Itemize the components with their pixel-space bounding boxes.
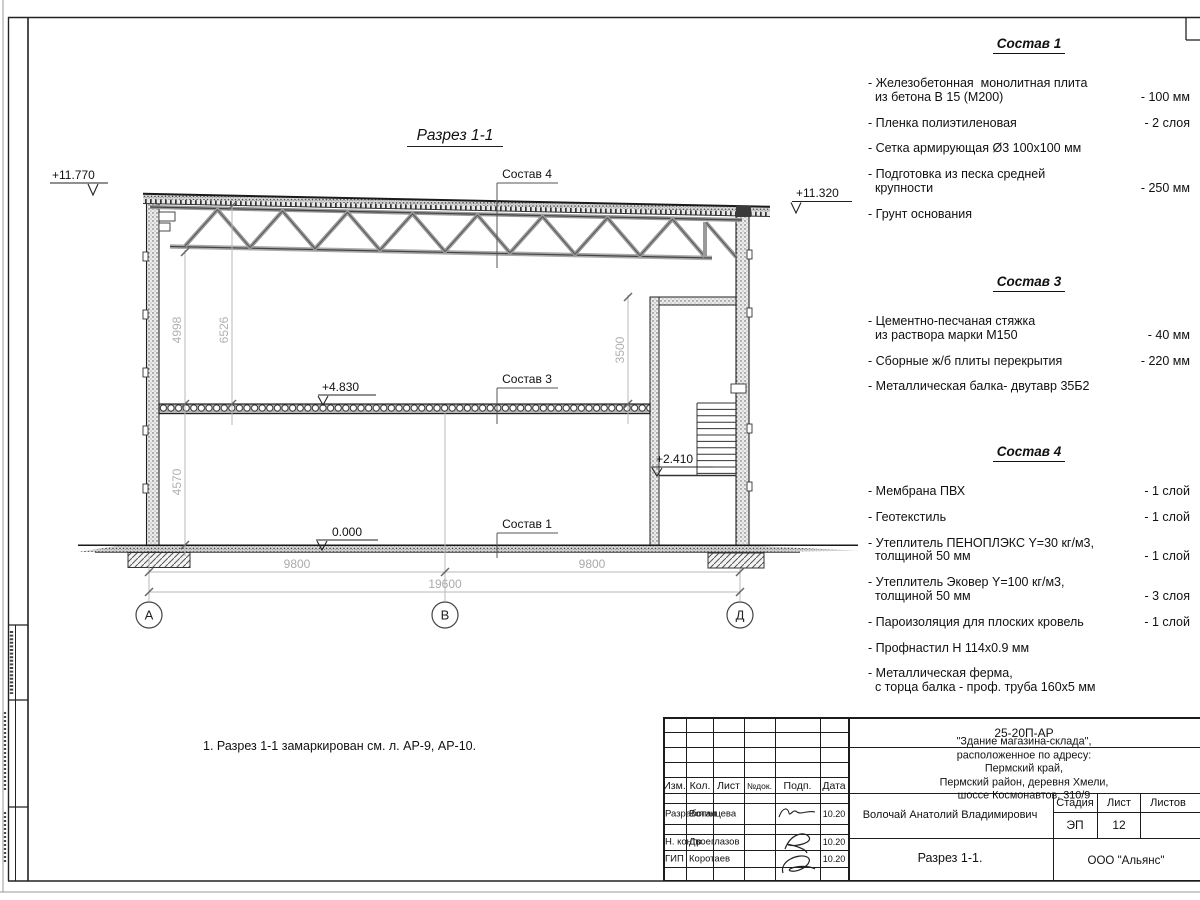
axis-label-b: В [441,608,450,623]
dim-4570: 4570 [170,468,184,495]
spec-item: - Цементно-песчаная стяжка из раствора м… [868,315,1190,343]
title-block: 25-20П-АР "Здание магазина-склада", расп… [663,717,1200,881]
stage-value: ЭП [1066,818,1083,832]
col-ndok: №док. [747,781,772,791]
row-date: 10.20 [823,809,846,819]
leader-sostav3: Состав 3 [502,372,552,386]
spec-item: - Профнастил Н 114х0.9 мм [868,642,1190,656]
spec-item: - Геотекстиль- 1 слой [868,511,1190,525]
dim-span2: 9800 [579,557,606,571]
stairwell-ceiling-slab [659,297,736,305]
spec-item: - Металлическая ферма, с торца балка - п… [868,667,1190,695]
row-name: Коротаев [689,853,730,864]
sheets-label: Листов [1150,797,1186,809]
elev-ground: 0.000 [332,525,362,539]
col-kol: Кол. [690,780,711,792]
spec-item: - Утеплитель Эковер Y=100 кг/м3, толщино… [868,576,1190,604]
ground-floor [78,545,858,568]
axis-bubbles: А В Д [136,602,753,628]
spec-title: Состав 4 [868,444,1190,459]
elev-floor-slab: +4.830 [322,380,359,394]
foundation-right [708,553,764,568]
spec-item: - Подготовка из песка средней крупности-… [868,168,1190,196]
spec-item: - Сетка армирующая Ø3 100х100 мм [868,142,1190,156]
spec-item: - Мембрана ПВХ- 1 слой [868,485,1190,499]
col-list: Лист [717,780,740,792]
spec-item: - Пленка полиэтиленовая- 2 слоя [868,117,1190,131]
row-role: ГИП [665,853,684,864]
axis-label-a: А [145,608,154,623]
spec-list-sostav-4: Состав 4 - Мембрана ПВХ- 1 слой - Геотек… [868,444,1190,707]
elev-roof-right: +11.320 [796,186,839,200]
leader-sostav4: Состав 4 [502,167,552,181]
sheet-title: Разрез 1-1. [918,851,983,865]
dim-6526: 6526 [217,316,231,343]
stairwell-wall [650,297,659,545]
section-title: Разрез 1-1 [417,127,494,144]
drawing-sheet: А В Д Разрез 1-1 +11.770 +11.320 +4.830 … [0,0,1200,900]
elev-roof-left: +11.770 [52,168,95,182]
drawing-note: 1. Разрез 1-1 замаркирован см. л. АР-9, … [203,739,476,753]
signature [775,829,821,878]
spec-title: Состав 3 [868,274,1190,289]
roof-truss [150,207,742,258]
spec-item: - Утеплитель ПЕНОПЛЭКС Y=30 кг/м3, толщи… [868,537,1190,565]
row-date: 10.20 [823,837,846,847]
row-date: 10.20 [823,854,846,864]
dim-4998: 4998 [170,316,184,343]
spec-list-sostav-1: Состав 1 - Железобетонная монолитная пли… [868,36,1190,234]
spec-item: - Железобетонная монолитная плита из бет… [868,77,1190,105]
col-podp: Подп. [784,780,812,792]
dim-3500: 3500 [613,336,627,363]
spec-item: - Сборные ж/б плиты перекрытия- 220 мм [868,355,1190,369]
stage-label: Стадия [1056,797,1094,809]
foundation-left [128,553,190,568]
elev-stair-landing: +2.410 [656,452,693,466]
dim-total: 19600 [428,577,462,591]
floor-slab [159,404,650,414]
row-name: Вотинцева [689,809,736,820]
designer-full-name: Волочай Анатолий Владимирович [863,809,1038,821]
col-data: Дата [822,780,845,792]
leader-lines [497,183,558,558]
row-name: Двоеглазов [689,837,740,848]
sheet-value: 12 [1112,818,1125,832]
spec-item: - Грунт основания [868,208,1190,222]
signature [777,804,819,822]
axis-label-d: Д [736,608,745,623]
spec-list-sostav-3: Состав 3 - Цементно-песчаная стяжка из р… [868,274,1190,406]
project-name: "Здание магазина-склада", расположенное … [936,735,1112,803]
spec-title: Состав 1 [868,36,1190,51]
leader-sostav1: Состав 1 [502,517,552,531]
roof-edge-anchor [736,206,751,217]
company-name: ООО "Альянс" [1088,855,1165,867]
dim-span1: 9800 [284,557,311,571]
spec-item: - Металлическая балка- двутавр 35Б2 [868,380,1190,394]
sheet-label: Лист [1107,797,1131,809]
spec-item: - Пароизоляция для плоских кровель- 1 сл… [868,616,1190,630]
col-izm: Изм. [663,780,686,792]
